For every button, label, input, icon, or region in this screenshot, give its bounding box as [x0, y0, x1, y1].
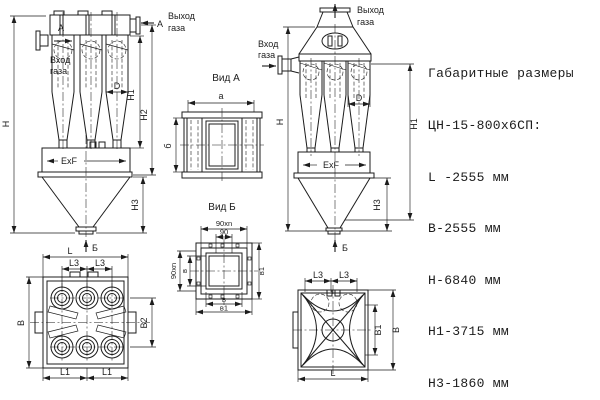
view-b-letter: Б [92, 243, 98, 253]
dim-H3: Н3 [96, 177, 147, 233]
view-b-drawing: Вид Б 90xn 90 90xn [169, 202, 266, 315]
view-arrow-a-left: А Вход газа [50, 23, 72, 76]
spec-item: L -2555 мм [428, 169, 598, 186]
view-a-drawing: Вид А а б [163, 73, 264, 182]
dim-L-label: L [330, 368, 335, 378]
plan-view-right: L3 L3 В1 В L [293, 270, 401, 382]
view-a-title: Вид А [212, 73, 240, 84]
dim-H1-label: Н1 [409, 118, 419, 130]
dim-L1-label: L1 [102, 367, 112, 377]
dim-90-label: 90 [220, 228, 228, 237]
plan-view-left: L L3 L3 В В2 L1 [16, 246, 156, 381]
dim-L3-label: L3 [95, 258, 105, 268]
dim-a: а [188, 91, 254, 112]
dim-D: D [106, 81, 128, 92]
side-view-drawing: Выход газа Вход газа [258, 4, 419, 253]
dim-H1: Н1 [345, 64, 419, 220]
view-b-letter: Б [342, 243, 348, 253]
gas-outlet-label-1: Выход [357, 5, 385, 15]
dim-H1-label: Н1 [126, 89, 136, 101]
spec-item: Н-6840 мм [428, 272, 598, 289]
dim-D-label: D [114, 81, 121, 91]
dim-H2-label: Н2 [139, 109, 149, 121]
dim-a-label: а [218, 91, 223, 101]
dim-L1-label: L1 [60, 367, 70, 377]
view-a-letter: А [157, 19, 163, 29]
bunker: ЕхF [38, 142, 132, 177]
spec-item: Н1-3715 мм [428, 323, 598, 340]
dim-H-label: Н [275, 119, 285, 126]
dim-L3-label: L3 [339, 270, 349, 280]
view-arrow-a-top: А Выход газа [141, 11, 196, 33]
outlet-pipe: Выход газа [317, 4, 385, 27]
dim-b-label: б [163, 143, 173, 148]
gas-outlet-label-2: газа [168, 23, 185, 33]
gas-inlet-label-2: газа [50, 66, 67, 76]
gas-outlet-label-1: Выход [168, 11, 196, 21]
dim-L3-label: L3 [313, 270, 323, 280]
gas-inlet-label-1: Вход [50, 55, 71, 65]
view-a-letter: А [58, 23, 64, 33]
outlet-neck [130, 19, 136, 32]
dim-L3-label: L3 [69, 258, 79, 268]
dim-H2: Н2 [133, 25, 156, 175]
inlet-stub: Вход газа [258, 39, 299, 74]
dim-B-label: В [391, 327, 401, 333]
view-b-title: Вид Б [208, 202, 236, 213]
bunker: ЕхF [294, 152, 374, 178]
dim-v1-right-label: в1 [257, 267, 266, 275]
dim-H3-label: Н3 [130, 199, 140, 211]
bunker-label: ЕхF [61, 156, 78, 166]
spec-item: В-2555 мм [428, 220, 598, 237]
gas-outlet-label-2: газа [357, 17, 374, 27]
dim-L1-pair: L1 L1 [43, 367, 128, 381]
dim-L3-pair: L3 L3 [305, 270, 357, 292]
dim-H3-label: Н3 [372, 199, 382, 211]
gas-inlet-label-1: Вход [258, 39, 279, 49]
bunker-label: ЕхF [323, 160, 340, 170]
spec-item: Н3-1860 мм [428, 375, 598, 392]
spec-model: ЦН-15-800х6СП: [428, 117, 598, 134]
drawing-sheet: ЕхF А Выход газа А Вход газа Б [0, 0, 600, 400]
dim-B-label: В [16, 320, 26, 326]
dim-L-label: L [67, 246, 72, 256]
spec-title: Габаритные размеры [428, 65, 598, 82]
dim-B1-label: В1 [373, 324, 383, 335]
dim-D-label: D [356, 93, 363, 103]
discharge-cone [42, 135, 130, 237]
dim-B2-label: В2 [139, 317, 149, 328]
gas-inlet-label-2: газа [258, 50, 275, 60]
outlet-flange [136, 17, 140, 34]
spec-panel: Габаритные размеры ЦН-15-800х6СП: L -255… [428, 31, 598, 400]
inlet-stub [36, 31, 48, 50]
view-arrow-b: Б [335, 240, 348, 253]
view-arrow-b: Б [86, 240, 98, 253]
dim-H: Н [1, 16, 75, 233]
dim-90xn-left-label: 90xn [169, 263, 178, 279]
dim-v-left-label: в [180, 269, 189, 273]
front-view-drawing: ЕхF А Выход газа А Вход газа Б [1, 11, 196, 253]
dim-v1-bottom-label: в1 [220, 304, 228, 313]
dim-H3: Н3 [372, 178, 391, 231]
dim-H-label: Н [1, 121, 11, 128]
dim-H1: Н1 [126, 36, 144, 148]
dim-D: D [348, 93, 370, 107]
